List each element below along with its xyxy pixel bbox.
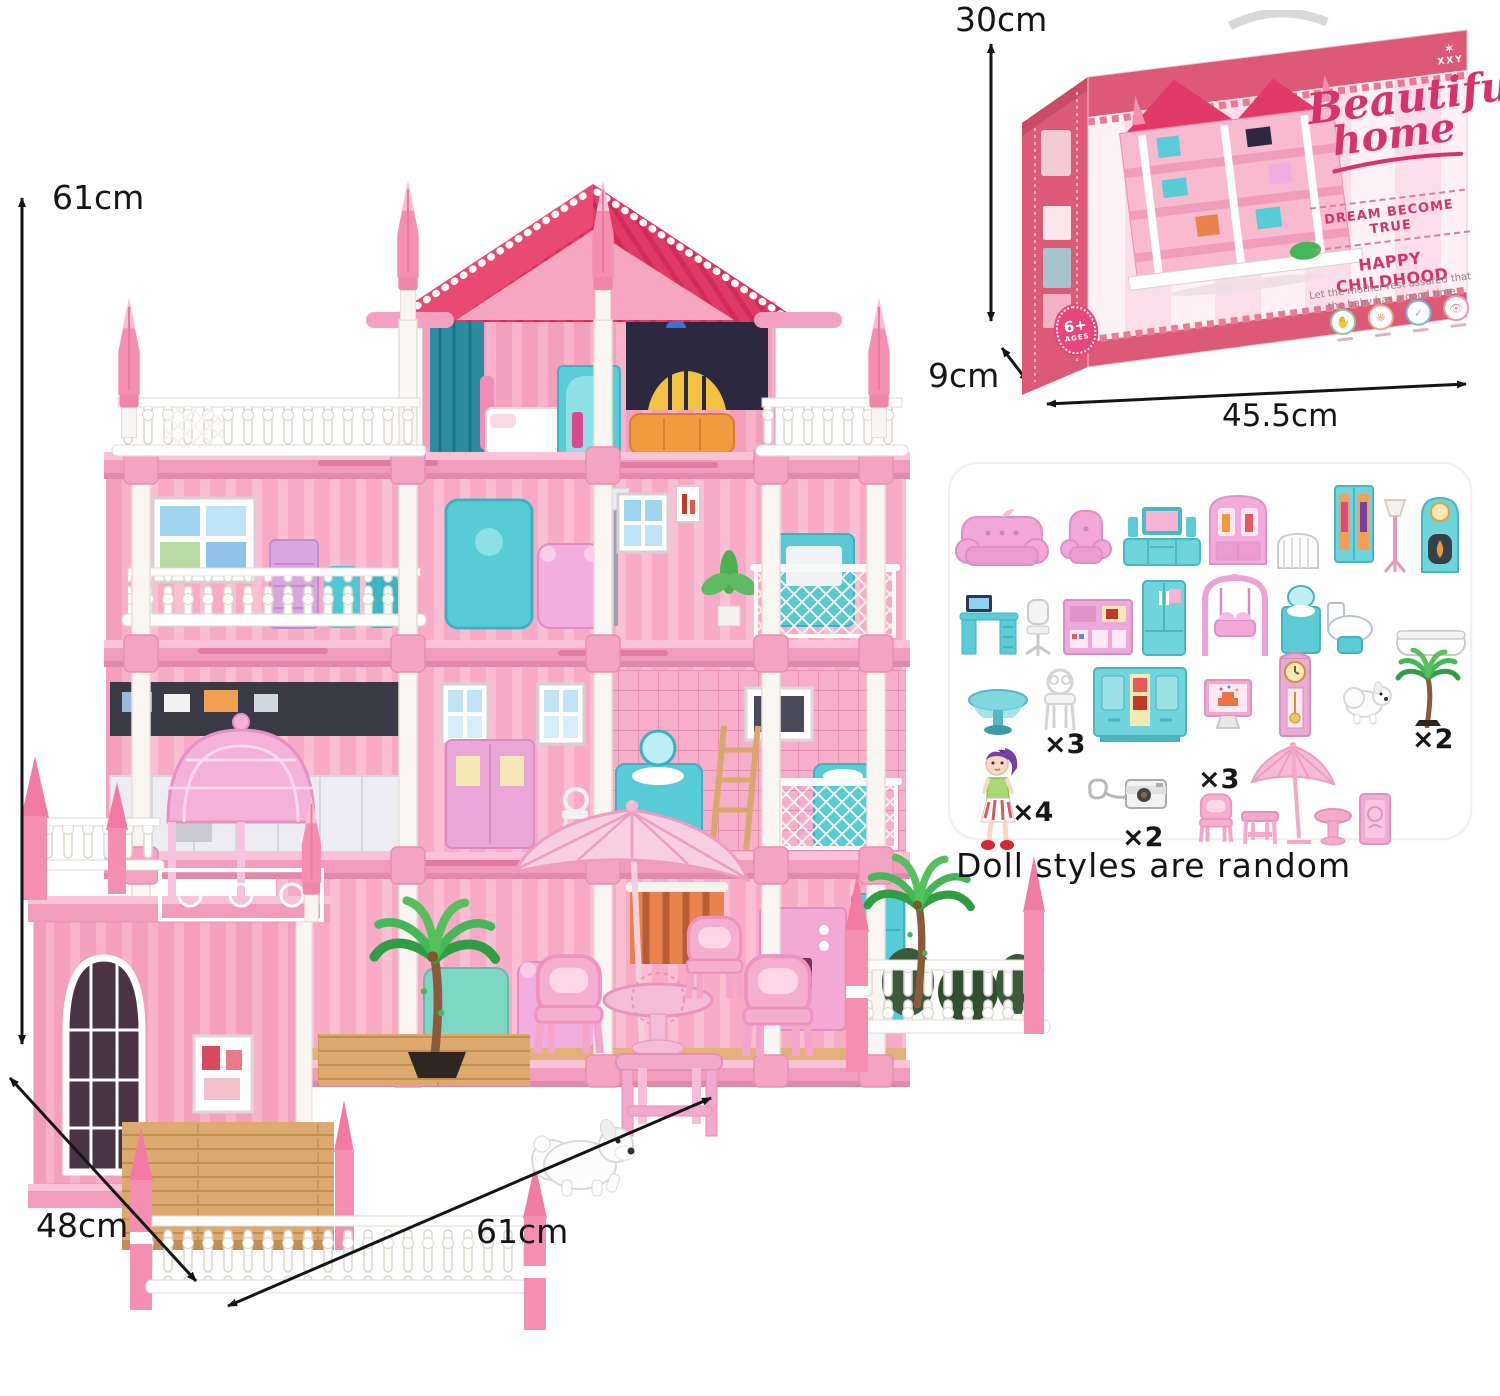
- accessory-baby-crib-icon: [1272, 528, 1324, 574]
- accessory-grandfather-clock-icon: [1272, 650, 1318, 742]
- accessory-kitchen-counter-icon: [1062, 596, 1134, 658]
- dollhouse-illustration: [18, 170, 1068, 1330]
- accessory-cupboard-icon: [1090, 662, 1190, 744]
- patio-chair-qty: ×3: [1198, 764, 1239, 795]
- accessory-puppy-icon: [1342, 666, 1394, 728]
- accessory-palm-tree-icon: [1395, 648, 1461, 728]
- accessory-refrigerator-icon: [1139, 579, 1189, 659]
- puppy: [532, 1117, 635, 1196]
- accessory-white-chair-icon: [1040, 668, 1080, 734]
- accessory-tv-cabinet-icon: [1120, 503, 1204, 571]
- product-image: 61cm 48cm 61cm 30cm 9cm 45.5cm: [0, 0, 1500, 1396]
- doll-qty: ×4: [1012, 797, 1053, 828]
- house-width-label: 61cm: [476, 1212, 568, 1251]
- palm-tree-qty: ×2: [1412, 724, 1453, 755]
- brand-emblem: ✶ XXY: [1431, 42, 1469, 68]
- accessory-patio-cabinet-icon: [1356, 790, 1394, 848]
- accessory-garden-swing-icon: [1197, 572, 1273, 660]
- accessory-armchair-icon: [1060, 505, 1112, 575]
- house-height-label: 61cm: [52, 178, 144, 217]
- accessory-patio-chair-icon: [1197, 792, 1235, 846]
- box-depth-label: 9cm: [928, 356, 999, 395]
- shield-check-icon: ✓: [1404, 298, 1433, 327]
- accessory-camera-keychain-icon: [1086, 772, 1172, 818]
- accessory-round-table-icon: [966, 688, 1030, 736]
- accessory-wardrobe-icon: [1331, 482, 1377, 568]
- accessory-office-chair-icon: [1022, 598, 1054, 658]
- accessory-bathroom-set-icon: [1280, 585, 1378, 659]
- accessory-display-hutch-icon: [1206, 492, 1270, 570]
- box-handle: [1230, 13, 1327, 26]
- accessory-fireplace-clock-icon: [1418, 492, 1462, 578]
- eye-icon: 👁: [1442, 294, 1471, 323]
- white-chair-qty: ×3: [1044, 729, 1085, 760]
- accessory-floor-lamp-icon: [1379, 494, 1411, 576]
- accessory-loveseat-icon: [954, 505, 1050, 577]
- house-depth-label: 48cm: [36, 1206, 128, 1245]
- imagination-icon: ❋: [1366, 303, 1395, 332]
- accessory-cake-screen-icon: [1203, 678, 1253, 736]
- accessory-computer-desk-icon: [958, 593, 1020, 657]
- doll-style-note: Doll styles are random: [956, 846, 1351, 885]
- accessory-patio-stool-icon: [1311, 806, 1355, 848]
- hand-icon: ✋: [1329, 307, 1358, 336]
